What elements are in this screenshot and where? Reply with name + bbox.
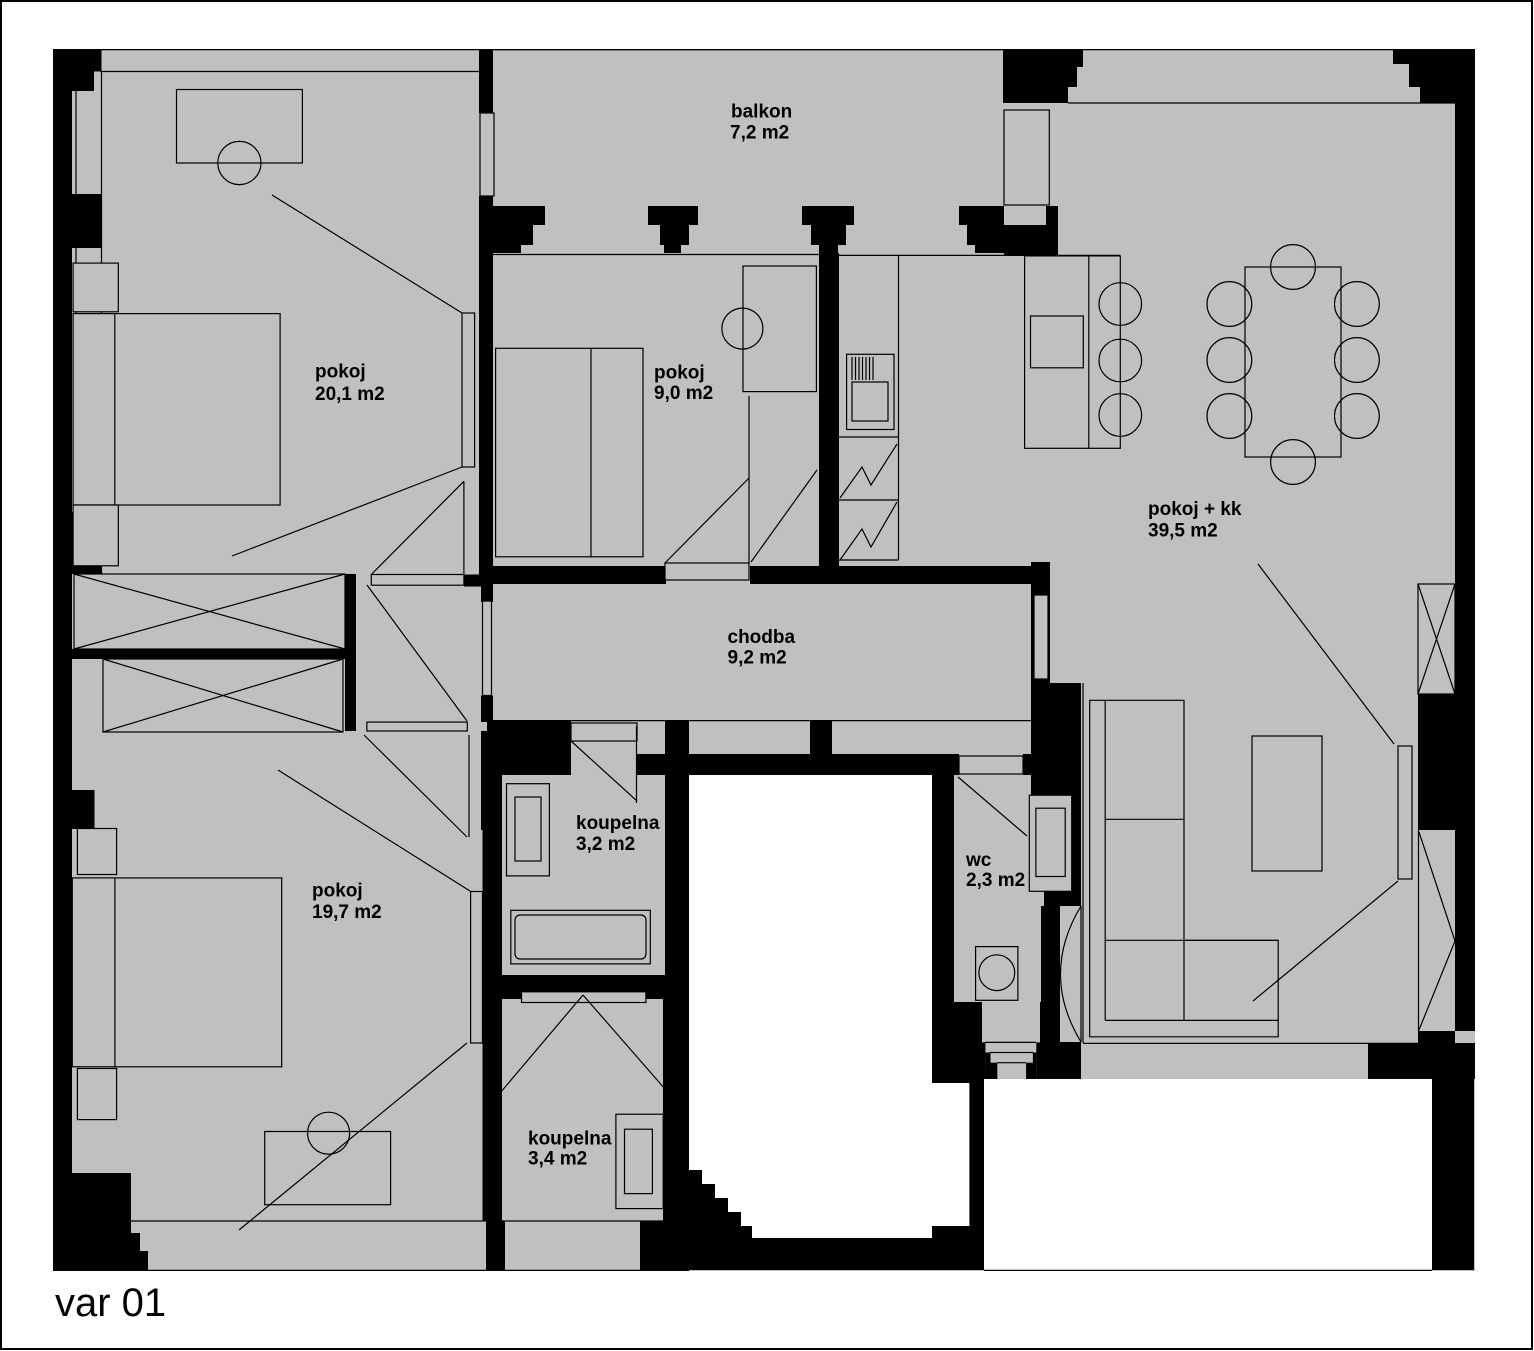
svg-text:9,0 m2: 9,0 m2: [654, 383, 713, 404]
svg-text:19,7 m2: 19,7 m2: [312, 902, 382, 923]
svg-text:pokoj: pokoj: [654, 363, 705, 384]
svg-text:3,2 m2: 3,2 m2: [576, 834, 635, 855]
svg-text:chodba: chodba: [728, 627, 796, 648]
svg-text:wc: wc: [965, 850, 992, 871]
svg-text:3,4 m2: 3,4 m2: [528, 1149, 587, 1170]
svg-text:20,1 m2: 20,1 m2: [315, 384, 385, 405]
svg-text:9,2 m2: 9,2 m2: [728, 648, 787, 669]
svg-text:koupelna: koupelna: [576, 813, 660, 834]
svg-text:var 01: var 01: [55, 1281, 166, 1325]
svg-text:koupelna: koupelna: [528, 1129, 612, 1150]
svg-text:pokoj: pokoj: [315, 362, 366, 383]
svg-text:7,2 m2: 7,2 m2: [730, 123, 789, 144]
svg-text:pokoj: pokoj: [312, 881, 363, 902]
svg-text:pokoj + kk: pokoj + kk: [1148, 499, 1242, 520]
svg-text:39,5 m2: 39,5 m2: [1148, 521, 1218, 542]
svg-text:balkon: balkon: [731, 102, 792, 123]
svg-text:2,3 m2: 2,3 m2: [966, 870, 1025, 891]
